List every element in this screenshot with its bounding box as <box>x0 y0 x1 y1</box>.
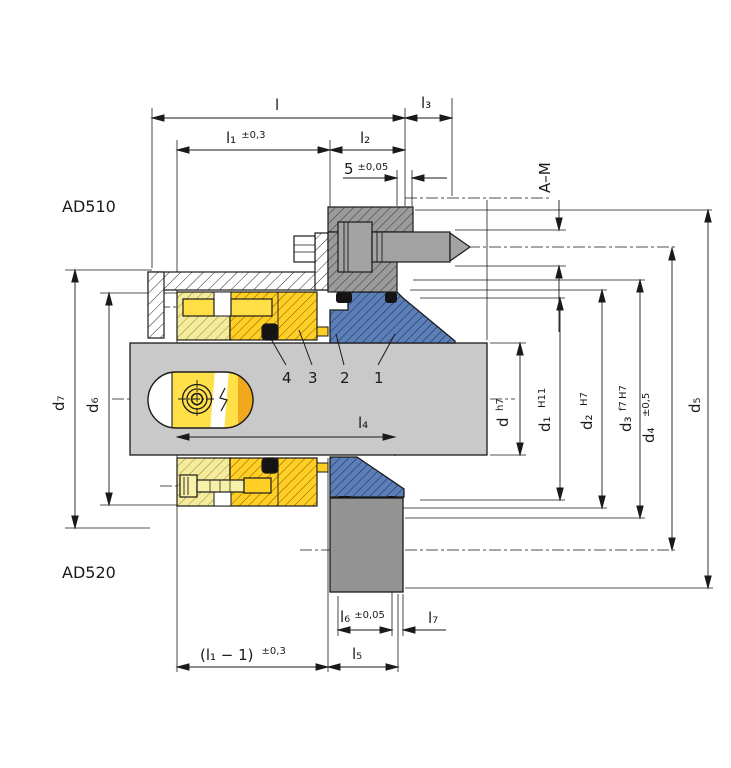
clamp-sleeve-bottom <box>330 498 403 592</box>
seat-ring-pale-top <box>177 292 328 340</box>
label-d7: d₇ <box>50 395 68 411</box>
svg-text:A–M: A–M <box>536 162 554 193</box>
label-a-m: A–M <box>536 162 554 193</box>
oring-clamp-left <box>336 292 352 303</box>
label-l2: l₂ <box>360 129 370 147</box>
svg-text:d₆: d₆ <box>84 397 102 413</box>
variant-label-ad520: AD520 <box>62 563 116 582</box>
label-d5: d₅ <box>686 397 704 413</box>
seat-ring-pale-bottom <box>177 458 328 506</box>
label-l4: l₄ <box>358 414 368 432</box>
svg-text:d₇: d₇ <box>50 395 68 411</box>
housing-stud <box>294 236 315 262</box>
variant-label-ad510: AD510 <box>62 197 116 216</box>
callout-1: 1 <box>374 369 384 387</box>
callout-2: 2 <box>340 369 350 387</box>
label-l3: l₃ <box>421 94 431 112</box>
label-l5: l₅ <box>352 645 362 663</box>
label-l: l <box>275 96 279 114</box>
oring-top-inner <box>262 324 278 340</box>
seal-assembly-drawing: AD510 AD520 l l₃ l₁±0,3 l₂ 5±0,05 l₄ (l₁… <box>0 0 731 768</box>
callout-4: 4 <box>282 369 292 387</box>
oring-bottom-inner <box>262 458 278 473</box>
svg-text:d₅: d₅ <box>686 397 704 413</box>
drive-pin <box>183 299 214 316</box>
callout-3: 3 <box>308 369 318 387</box>
label-l7: l₇ <box>428 609 438 627</box>
technical-drawing-page: AD510 AD520 l l₃ l₁±0,3 l₂ 5±0,05 l₄ (l₁… <box>0 0 731 768</box>
label-d6: d₆ <box>84 397 102 413</box>
oring-clamp-right <box>385 292 397 303</box>
